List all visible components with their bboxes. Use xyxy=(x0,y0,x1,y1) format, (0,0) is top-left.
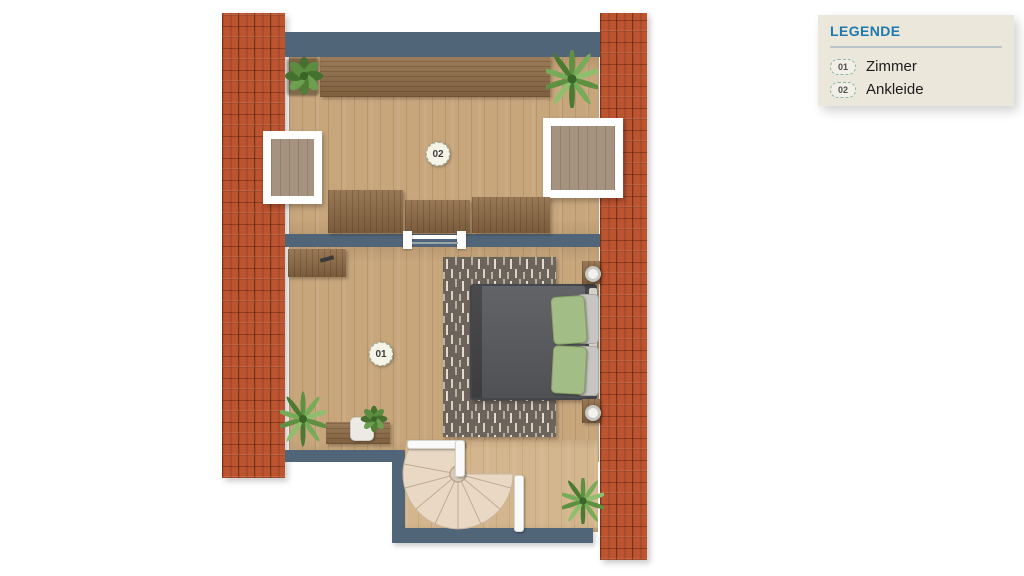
floorplan-page: 02 01 xyxy=(0,0,1024,576)
staircase-railing-entry xyxy=(455,440,465,477)
legend-badge-02: 02 xyxy=(830,82,856,98)
roof-tile-strip-right xyxy=(600,13,647,560)
staircase-railing-right xyxy=(514,475,524,532)
door-leaf-line xyxy=(412,242,458,244)
wardrobe-bottom-middle xyxy=(405,200,470,233)
plant-bottom-right-icon xyxy=(562,478,604,524)
legend-title: LEGENDE xyxy=(830,23,1002,39)
door-post-left xyxy=(403,231,412,249)
legend-label-ankleide: Ankleide xyxy=(866,81,924,98)
desk-top-left xyxy=(288,249,346,277)
desk-plant-icon xyxy=(360,405,388,433)
legend-panel: LEGENDE 01 Zimmer 02 Ankleide xyxy=(818,15,1014,106)
plant-top-right-icon xyxy=(546,50,598,108)
room-label-ankleide: 02 xyxy=(426,142,450,166)
legend-label-zimmer: Zimmer xyxy=(866,58,917,75)
skylight-window-right xyxy=(543,118,623,198)
plant-bottom-left-icon xyxy=(280,388,326,450)
bedside-lamp-bottom-icon xyxy=(585,405,601,421)
pillow-green-top xyxy=(550,295,587,345)
wardrobe-bottom-left xyxy=(328,190,403,233)
plant-top-left-icon xyxy=(284,54,324,98)
wall-step-horizontal xyxy=(285,450,405,462)
door-threshold xyxy=(405,235,465,239)
room-label-zimmer: 01 xyxy=(369,342,393,366)
wardrobe-bottom-right xyxy=(472,197,550,233)
pillow-green-bottom xyxy=(551,345,587,395)
bedside-lamp-top-icon xyxy=(585,266,601,282)
skylight-window-left xyxy=(263,131,322,204)
legend-divider xyxy=(830,46,1002,48)
legend-item-ankleide: 02 Ankleide xyxy=(830,81,1002,98)
roof-tile-strip-left xyxy=(222,13,285,478)
wardrobe-counter-top xyxy=(320,57,550,97)
legend-badge-01: 01 xyxy=(830,59,856,75)
door-post-right xyxy=(457,231,466,249)
legend-item-zimmer: 01 Zimmer xyxy=(830,58,1002,75)
